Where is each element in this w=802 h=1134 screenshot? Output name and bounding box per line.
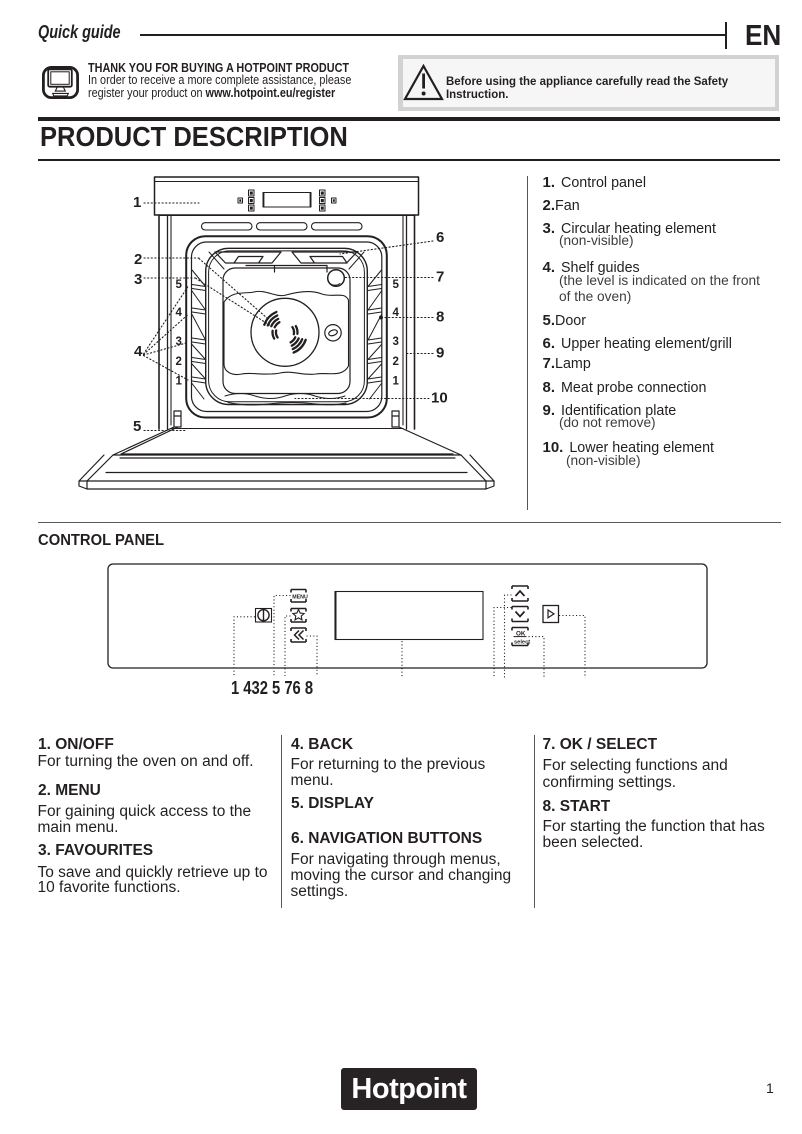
svg-text:MENU: MENU <box>292 594 308 600</box>
svg-text:select: select <box>514 639 530 645</box>
